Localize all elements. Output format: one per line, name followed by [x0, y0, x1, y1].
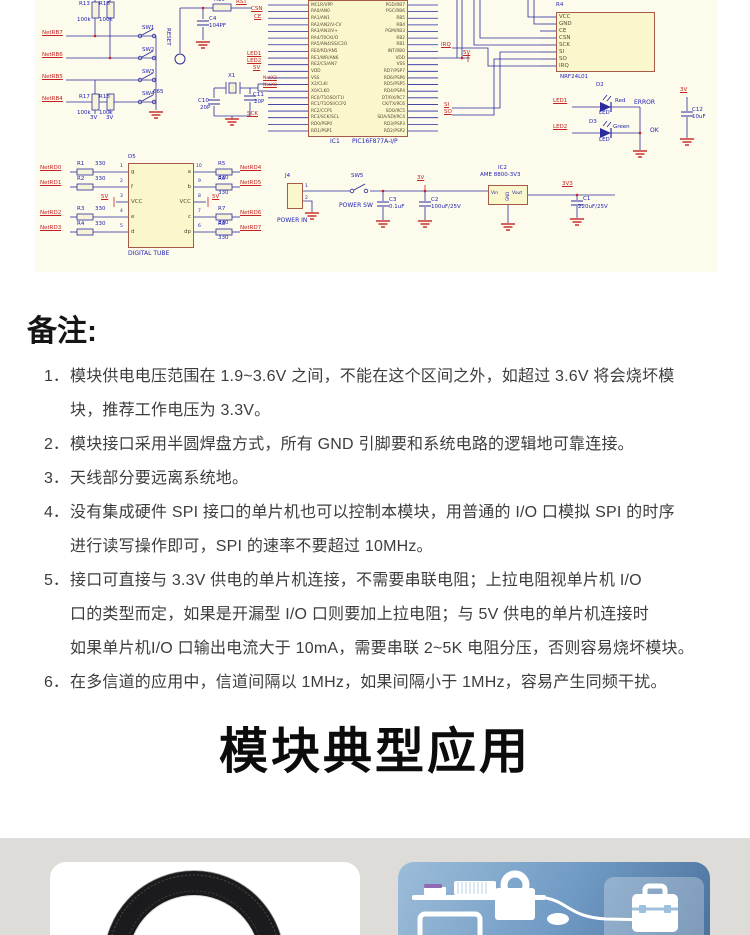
schematic-label: PIC16F877A-I/P: [352, 139, 398, 145]
schematic-label: 330: [218, 236, 229, 242]
schematic-label: CE: [254, 15, 261, 21]
schematic-label: 20P: [200, 106, 210, 112]
schematic-label: 9: [198, 180, 201, 185]
schematic-label: POWER IN: [277, 218, 307, 224]
power-connector: [287, 183, 303, 209]
schematic-label: NetX0: [263, 84, 277, 89]
schematic-label: R7: [218, 207, 225, 213]
schematic-label: C4: [209, 17, 216, 23]
schematic-label: 3V: [417, 176, 424, 182]
schematic-label: SW3: [142, 70, 154, 76]
schematic-label: IC1: [330, 139, 340, 145]
schematic-label: SCK: [247, 112, 258, 118]
headphone-photo: [50, 862, 360, 935]
application-gallery: [0, 838, 750, 935]
note-item: 6．在多信道的应用中，信道间隔以 1MHz，如果间隔小于 1MHz，容易产生同频…: [44, 666, 720, 700]
schematic-label: 330: [95, 177, 106, 183]
schematic-label: 2: [120, 180, 123, 185]
schematic-label: 8: [198, 195, 201, 200]
schematic-label: LED: [599, 138, 610, 144]
digital-tube: gfVCCedabVCCcdp: [128, 163, 194, 248]
schematic-label: NetRD5: [240, 181, 261, 187]
schematic-label: POWER SW: [339, 203, 373, 209]
schematic-label: NetRD6: [240, 211, 261, 217]
schematic-label: C11: [253, 93, 264, 99]
schematic-label: 5V: [463, 51, 470, 57]
schematic-label: 104PF: [209, 24, 226, 30]
monitor-icon: [420, 914, 480, 935]
schematic-label: R6: [218, 177, 225, 183]
schematic-label: NetRB5: [42, 75, 63, 81]
schematic-label: SW1: [142, 26, 154, 32]
section-title: 模块典型应用: [0, 712, 750, 783]
schematic-label: R13: [79, 2, 90, 8]
schematic-label: R16: [99, 2, 110, 8]
schematic-label: 10uF: [692, 115, 706, 121]
schematic-label: AME 8800-3V3: [480, 173, 520, 179]
rf-module: VCCGNDCECSNSCKSISOIRQ: [556, 12, 655, 72]
schematic-label: Vin: [491, 192, 498, 197]
schematic-label: LED1: [553, 99, 567, 105]
product-description-page: { "notes": { "heading": "备注:", "items": …: [0, 0, 750, 935]
schematic-label: D3: [589, 120, 597, 126]
schematic-label: 5V: [253, 66, 260, 72]
schematic-label: ERROR: [634, 100, 655, 106]
schematic-label: NetRD1: [40, 181, 61, 187]
note-item: 5．接口可直接与 3.3V 供电的单片机连接，不需要串联电阻；上拉电阻视单片机 …: [44, 564, 720, 666]
schematic-label: NetRD7: [240, 226, 261, 232]
schematic-label: SI: [444, 103, 449, 109]
schematic-label: 100k: [99, 18, 113, 24]
lock-bag-icon: [495, 874, 535, 920]
note-item: 3．天线部分要远离系统地。: [44, 462, 720, 496]
schematic-label: C3: [389, 198, 396, 204]
schematic-label: 5V: [101, 195, 108, 201]
schematic-label: RESET: [165, 28, 171, 46]
schematic-label: 220uF/25V: [578, 205, 608, 211]
schematic-label: LED1: [247, 52, 261, 58]
schematic-label: 3V: [106, 116, 113, 122]
schematic-label: SW5: [351, 174, 363, 180]
schematic-label: 3V: [680, 88, 687, 94]
schematic-label: SO: [444, 110, 452, 116]
schematic-label: R4: [556, 3, 563, 9]
schematic-label: DIGITAL TUBE: [128, 251, 169, 257]
schematic-label: R1: [77, 162, 84, 168]
schematic-label: X1: [228, 74, 235, 80]
schematic-label: NetRD4: [240, 166, 261, 172]
schematic-label: 100k: [77, 111, 91, 117]
note-item: 2．模块接口采用半圆焊盘方式，所有 GND 引脚要和系统电路的逻辑地可靠连接。: [44, 428, 720, 462]
schematic-label: 10: [196, 165, 202, 170]
schematic-label: IC2: [498, 166, 507, 172]
schematic-label: 100uF/25V: [431, 205, 461, 211]
schematic-label: Green: [613, 125, 630, 131]
schematic-label: CSN: [251, 7, 262, 13]
schematic-label: LED: [599, 111, 610, 117]
schematic-label: NRF24L01: [560, 75, 588, 81]
schematic-label: RST: [236, 0, 247, 6]
schematic-label: R5: [218, 162, 225, 168]
schematic-label: D2: [596, 83, 604, 89]
schematic-label: 20P: [254, 100, 264, 106]
schematic-label: LED2: [247, 59, 261, 65]
schematic-label: R8: [218, 222, 225, 228]
schematic-label: J4: [285, 174, 290, 180]
schematic-label: NetRB7: [42, 31, 63, 37]
schematic-label: NetRB6: [42, 53, 63, 59]
application-scene-illustration: [398, 862, 710, 935]
schematic-label: 330: [218, 191, 229, 197]
schematic-label: NetRB4: [42, 97, 63, 103]
mcu: MCLR/VPPRA0/AN0RA1/AN1RA2/AN2/V-CVRA3/AN…: [308, 0, 408, 137]
circuit-schematic: MCLR/VPPRA0/AN0RA1/AN1RA2/AN2/V-CVRA3/AN…: [0, 0, 750, 272]
schematic-label: 3V3: [562, 182, 573, 188]
schematic-label: C1: [583, 197, 590, 203]
schematic-label: R17: [79, 95, 90, 101]
schematic-label: R3: [77, 207, 84, 213]
schematic-label: 5: [120, 225, 123, 230]
schematic-label: 3: [120, 195, 123, 200]
headphone-headband-image: [50, 862, 360, 935]
schematic-label: C2: [431, 198, 438, 204]
schematic-label: 6: [198, 225, 201, 230]
schematic-label: 2: [305, 197, 308, 202]
schematic-label: LED2: [553, 125, 567, 131]
schematic-label: 3V: [90, 116, 97, 122]
schematic-label: NetRD3: [40, 226, 61, 232]
schematic-label: R2: [77, 177, 84, 183]
schematic-label: SW2: [142, 48, 154, 54]
schematic-label: R10: [214, 0, 225, 4]
note-item: 4．没有集成硬件 SPI 接口的单片机也可以控制本模块，用普通的 I/O 口模拟…: [44, 496, 720, 564]
schematic-label: 330: [95, 162, 106, 168]
schematic-label: NetRD2: [40, 211, 61, 217]
schematic-label: 100k: [77, 18, 91, 24]
schematic-label: OK: [650, 128, 659, 134]
schematic-label: 330: [95, 207, 106, 213]
schematic-label: 665: [153, 90, 164, 96]
schematic-label: NetRD0: [40, 166, 61, 172]
schematic-label: C10: [198, 99, 209, 105]
schematic-label: 4: [120, 210, 123, 215]
schematic-label: GND: [506, 192, 510, 201]
desk-scene-icon: [398, 862, 710, 935]
notes-heading: 备注:: [27, 306, 97, 350]
schematic-label: D5: [128, 155, 136, 161]
schematic-label: NetX2: [263, 77, 277, 82]
schematic-label: 330: [95, 222, 106, 228]
schematic-label: 7: [198, 210, 201, 215]
schematic-label: 1: [305, 185, 308, 190]
small-object-icon: [547, 913, 569, 925]
schematic-label: 1: [120, 165, 123, 170]
schematic-label: 0.1uF: [389, 205, 404, 211]
note-item: 1．模块供电电压范围在 1.9~3.6V 之间，不能在这个区间之外，如超过 3.…: [44, 360, 720, 428]
notes-list: 1．模块供电电压范围在 1.9~3.6V 之间，不能在这个区间之外，如超过 3.…: [44, 360, 720, 700]
schematic-label: Red: [615, 99, 625, 105]
schematic-label: IRQ: [441, 43, 451, 49]
schematic-label: Vout: [512, 192, 522, 197]
schematic-label: C12: [692, 108, 703, 114]
schematic-label: R4: [77, 222, 84, 228]
schematic-label: 5V: [212, 195, 219, 201]
schematic-label: R18: [99, 95, 110, 101]
